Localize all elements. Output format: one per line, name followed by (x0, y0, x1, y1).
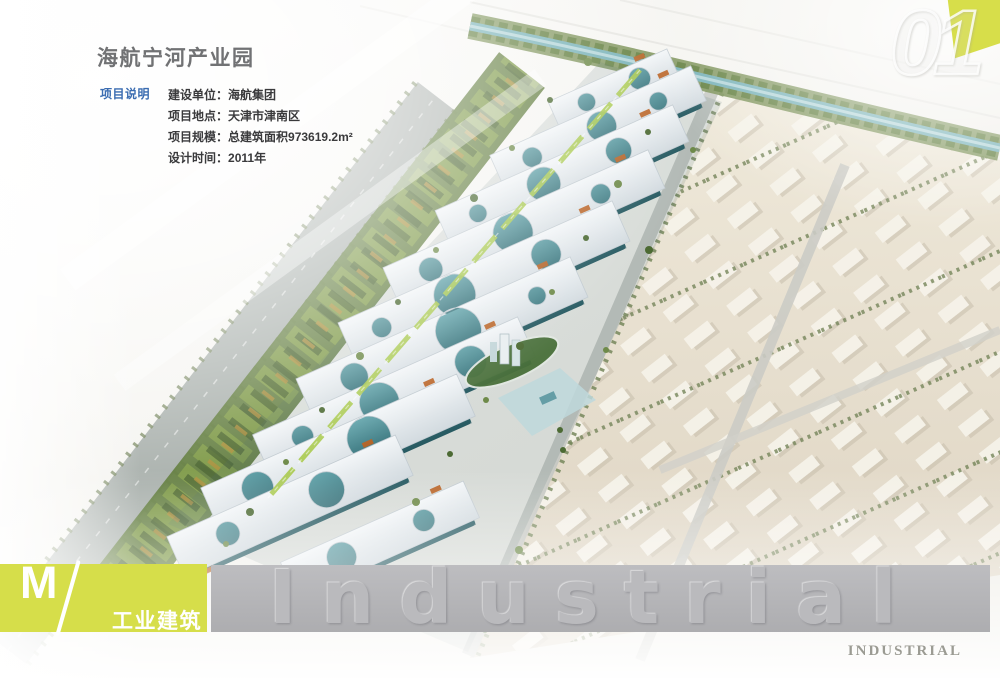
info-row-builder: 建设单位：海航集团 (168, 85, 353, 106)
category-box: M 工业建筑 (0, 564, 207, 632)
project-info-rows: 建设单位：海航集团 项目地点：天津市津南区 项目规模：总建筑面积973619.2… (168, 85, 353, 169)
info-row-scale: 项目规模：总建筑面积973619.2m² (168, 127, 353, 148)
portfolio-page: 海航宁河产业园 项目说明 建设单位：海航集团 项目地点：天津市津南区 项目规模：… (0, 0, 1000, 678)
category-letter: M (20, 560, 58, 605)
project-info: 项目说明 建设单位：海航集团 项目地点：天津市津南区 项目规模：总建筑面积973… (100, 85, 353, 169)
info-row-year: 设计时间：2011年 (168, 148, 353, 169)
watermark-band: Industrial (211, 565, 990, 632)
category-label: 工业建筑 (112, 605, 202, 635)
watermark-word: Industrial (269, 565, 921, 632)
section-number: 01 (890, 0, 976, 96)
project-info-label: 项目说明 (100, 85, 150, 169)
page-title: 海航宁河产业园 (97, 42, 255, 72)
info-row-location: 项目地点：天津市津南区 (168, 106, 353, 127)
slash-divider (55, 560, 80, 636)
watermark-caps: INDUSTRIAL (848, 643, 962, 660)
